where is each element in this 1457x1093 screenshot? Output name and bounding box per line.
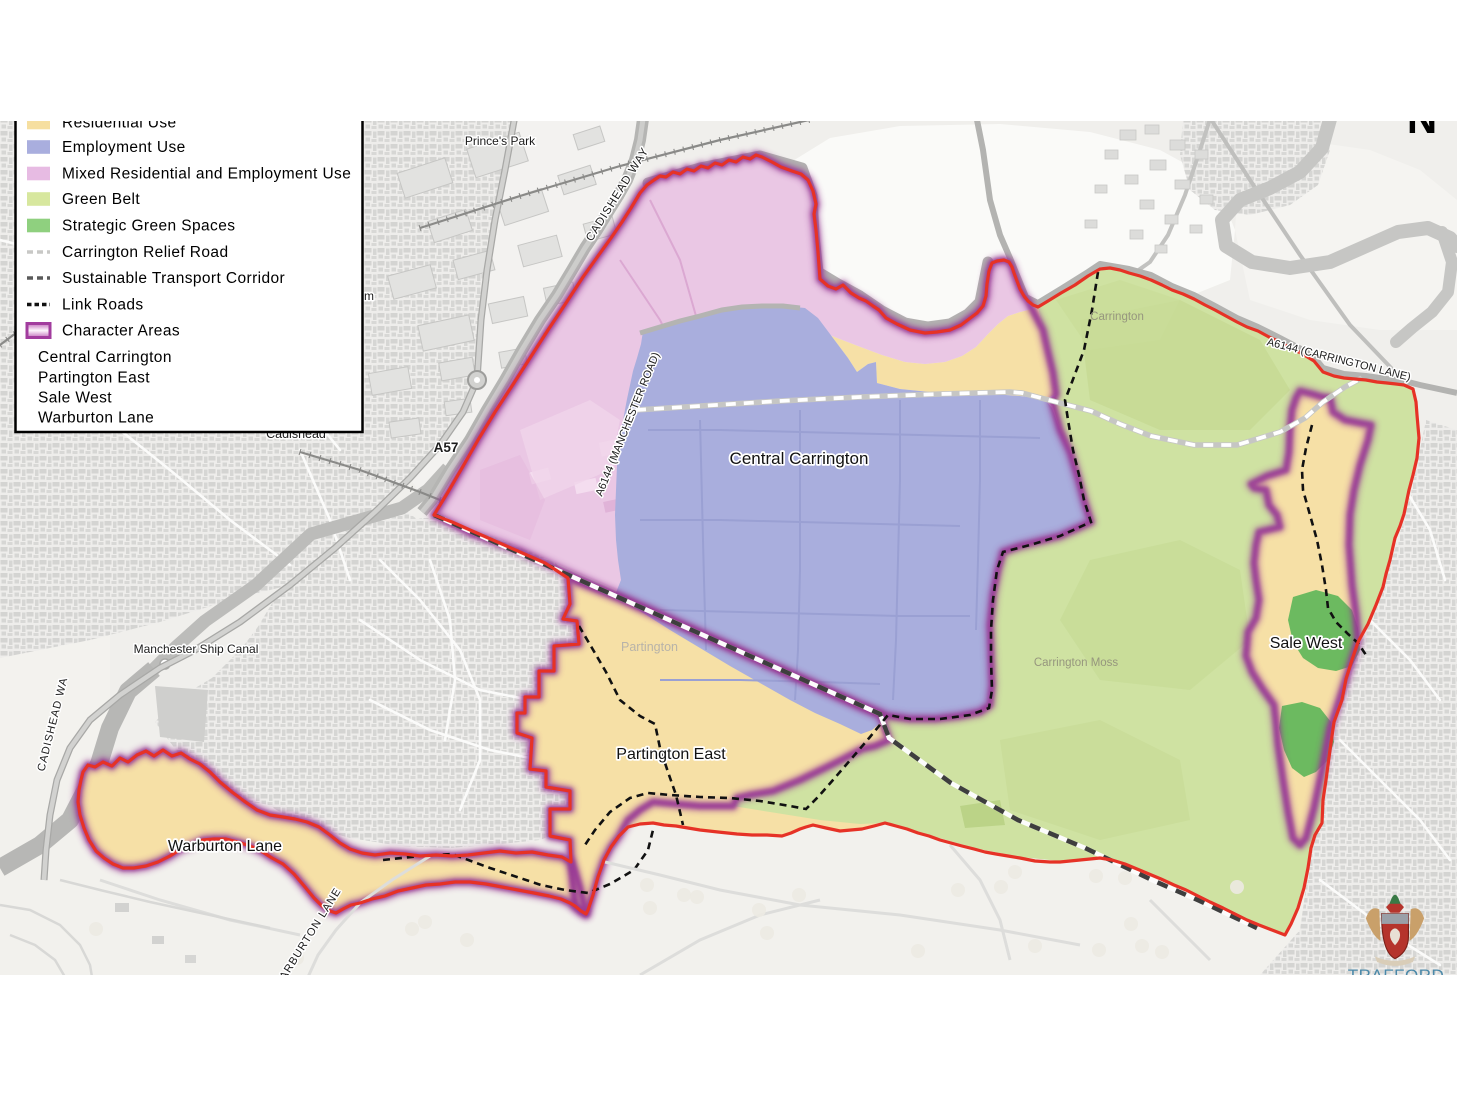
svg-text:A57: A57 bbox=[434, 440, 459, 455]
svg-text:Employment Use: Employment Use bbox=[62, 139, 186, 156]
svg-text:Manchester Ship Canal: Manchester Ship Canal bbox=[134, 642, 259, 656]
svg-text:Prince's Park: Prince's Park bbox=[465, 134, 536, 148]
svg-text:Warburton Lane: Warburton Lane bbox=[168, 838, 282, 855]
svg-text:Central Carrington: Central Carrington bbox=[38, 349, 172, 366]
svg-text:Partington: Partington bbox=[621, 640, 678, 654]
svg-text:Carrington Relief Road: Carrington Relief Road bbox=[62, 244, 228, 261]
svg-text:Central Carrington: Central Carrington bbox=[730, 449, 869, 468]
svg-text:Sustainable Transport Corridor: Sustainable Transport Corridor bbox=[62, 270, 285, 287]
svg-text:Warburton Lane: Warburton Lane bbox=[38, 410, 154, 427]
svg-text:Character Areas: Character Areas bbox=[62, 323, 180, 340]
svg-text:Partington East: Partington East bbox=[616, 746, 726, 763]
svg-text:Mixed Residential and Employme: Mixed Residential and Employment Use bbox=[62, 166, 351, 183]
svg-text:Partington East: Partington East bbox=[38, 370, 150, 387]
svg-text:Carrington: Carrington bbox=[1090, 311, 1144, 323]
svg-text:Link Roads: Link Roads bbox=[62, 297, 144, 314]
svg-text:Carrington Moss: Carrington Moss bbox=[1034, 657, 1119, 669]
svg-text:Green Belt: Green Belt bbox=[62, 191, 140, 208]
svg-text:Sale West: Sale West bbox=[38, 390, 112, 407]
svg-text:Strategic Green Spaces: Strategic Green Spaces bbox=[62, 218, 235, 235]
svg-text:Sale West: Sale West bbox=[1270, 635, 1343, 652]
svg-text:m: m bbox=[364, 289, 374, 303]
